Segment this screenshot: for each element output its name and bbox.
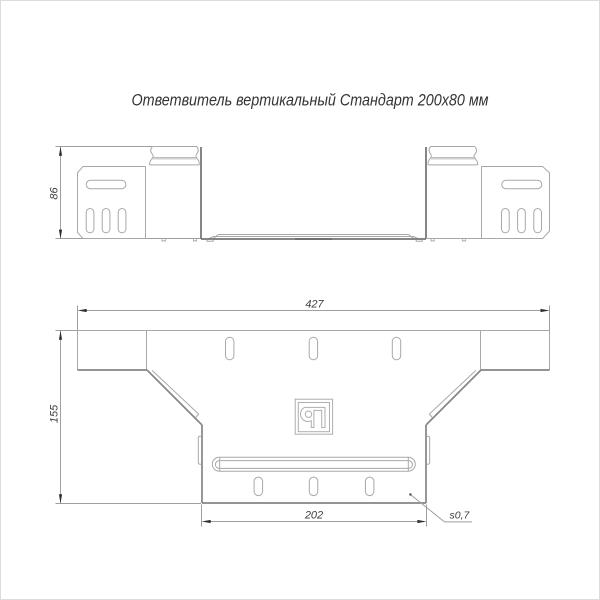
svg-text:202: 202 [304, 510, 323, 522]
svg-text:427: 427 [305, 299, 324, 311]
svg-text:s0,7: s0,7 [450, 510, 471, 522]
svg-text:86: 86 [49, 187, 61, 200]
svg-text:Ответвитель вертикальный Станд: Ответвитель вертикальный Стандарт 200х80… [132, 91, 489, 110]
svg-text:155: 155 [49, 404, 61, 423]
